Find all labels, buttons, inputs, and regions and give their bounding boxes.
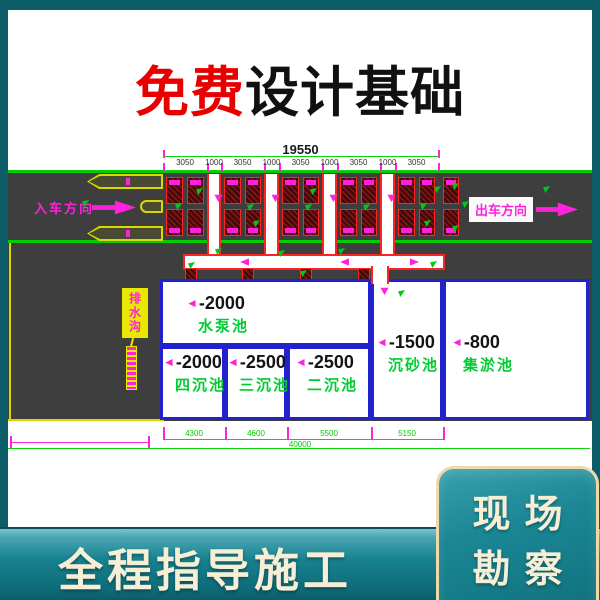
dim-label: 1000 <box>200 158 228 167</box>
pad-curb-strip <box>343 228 354 233</box>
wash-pad <box>187 209 204 236</box>
dim-tick <box>287 427 289 440</box>
traffic-island-fill <box>89 176 161 187</box>
page-title: 免费设计基础 <box>0 48 600 127</box>
leader-label: 排水沟 <box>127 292 144 334</box>
pool-depth-label: ◄-2000 <box>163 352 222 373</box>
exit-direction-label: 出车方向 <box>469 197 533 222</box>
dim-tick <box>163 427 165 440</box>
aux-dim-tick <box>148 436 150 448</box>
side-box-line2: 勘察 <box>439 538 596 593</box>
wash-pad <box>443 177 459 204</box>
side-box-line1: 现场 <box>439 483 596 538</box>
pad-curb-strip <box>190 180 201 185</box>
leader-label-box: 排水沟 <box>122 288 148 338</box>
wash-pad <box>224 209 241 236</box>
pool-name-label: 集淤池 <box>463 354 514 375</box>
wash-pad <box>340 209 357 236</box>
footer-banner-text: 全程指导施工 <box>25 534 385 599</box>
wash-pad <box>282 209 299 236</box>
pool-depth-label: ◄-2000 <box>186 293 245 314</box>
pad-curb-strip <box>401 180 412 185</box>
pad-curb-strip <box>364 180 375 185</box>
pad-curb-strip <box>306 228 317 233</box>
pool-name-label: 四沉池 <box>175 374 226 395</box>
dim-tick <box>443 427 445 440</box>
depth-marker-icon: ◄ <box>295 355 307 369</box>
title-highlight: 免费 <box>135 63 245 123</box>
pad-curb-strip <box>248 228 259 233</box>
dim-label: 3050 <box>345 158 373 167</box>
pool-depth-label: ◄-2500 <box>295 352 354 373</box>
pad-curb-strip <box>401 228 412 233</box>
dim-label: 4600 <box>240 429 272 438</box>
pad-curb-strip <box>285 228 296 233</box>
pool-name-label: 沉砂池 <box>388 354 439 375</box>
wash-pad <box>361 209 378 236</box>
magenta-arrow-icon <box>126 230 130 237</box>
dim-tick <box>371 427 373 440</box>
pad-curb-strip <box>422 228 433 233</box>
pool-depth-label: ◄-1500 <box>376 332 435 353</box>
dim-line <box>8 448 590 449</box>
dim-label: 5500 <box>313 429 345 438</box>
traffic-island-upper <box>87 174 163 189</box>
dim-tick <box>438 150 440 158</box>
wash-pad <box>303 209 320 236</box>
dim-label: 1000 <box>258 158 286 167</box>
title-rest: 设计基础 <box>245 63 465 123</box>
pad-curb-strip <box>306 180 317 185</box>
dim-tick <box>163 163 165 172</box>
pad-curb-strip <box>422 180 433 185</box>
drain-manifold <box>183 254 445 270</box>
total-dimension-top: 19550 <box>163 142 438 157</box>
dim-line <box>163 439 443 440</box>
pad-curb-strip <box>227 228 238 233</box>
wash-pad <box>187 177 204 204</box>
pad-curb-strip <box>364 228 375 233</box>
wash-pad <box>166 177 183 204</box>
magenta-arrow-icon <box>126 178 130 185</box>
wash-pad <box>398 177 415 204</box>
pool-depth-label: ◄-800 <box>451 332 500 353</box>
depth-marker-icon: ◄ <box>163 355 175 369</box>
pool-depth-label: ◄-2500 <box>227 352 286 373</box>
dim-tick <box>438 163 440 172</box>
pad-curb-strip <box>227 180 238 185</box>
pad-curb-strip <box>343 180 354 185</box>
boundary-line-bottom <box>8 419 164 421</box>
dim-label: 1000 <box>316 158 344 167</box>
pad-curb-strip <box>285 180 296 185</box>
pool-name-label: 水泵池 <box>198 315 249 336</box>
wash-pad <box>340 177 357 204</box>
dim-tick <box>225 427 227 440</box>
dim-label: 3050 <box>287 158 315 167</box>
dim-label: 1000 <box>374 158 402 167</box>
dim-label: 3050 <box>229 158 257 167</box>
traffic-island-lower <box>87 226 163 241</box>
lane-channel <box>322 174 337 240</box>
promo-page: 免费设计基础 入车方向 出车方向 排水沟 19550 40000 ⇐8% 全程指… <box>0 0 600 600</box>
depth-marker-icon: ◄ <box>451 335 463 349</box>
dim-label: 3050 <box>171 158 199 167</box>
pool-name-label: 二沉池 <box>307 374 358 395</box>
drain-strip <box>126 346 137 390</box>
pad-curb-strip <box>169 228 180 233</box>
pool-name-label: 三沉池 <box>239 374 290 395</box>
depth-marker-icon: ◄ <box>186 296 198 310</box>
wash-pad <box>443 209 459 236</box>
aux-dim-line <box>10 442 150 443</box>
wash-pad <box>166 209 183 236</box>
dim-tick <box>163 150 165 158</box>
lane-channel <box>207 174 221 240</box>
aux-dim-tick <box>10 436 12 448</box>
depth-marker-icon: ◄ <box>227 355 239 369</box>
wash-pad <box>245 177 262 204</box>
lane-channel <box>380 174 395 240</box>
wash-pad <box>282 177 299 204</box>
wash-pad <box>419 177 436 204</box>
wash-pad <box>245 209 262 236</box>
pad-curb-strip <box>248 180 259 185</box>
footer-side-box: 现场 勘察 <box>436 466 599 600</box>
road-edge-line-bottom <box>8 240 592 243</box>
traffic-island-middle <box>140 200 163 213</box>
traffic-island-fill <box>89 228 161 239</box>
wash-pad <box>224 177 241 204</box>
dim-line <box>163 156 438 157</box>
boundary-line-left <box>9 243 11 421</box>
dim-label: 5150 <box>391 429 423 438</box>
dim-label: 3050 <box>403 158 431 167</box>
dim-label: 4300 <box>178 429 210 438</box>
pad-curb-strip <box>190 228 201 233</box>
drain-drop-pipe <box>371 266 389 284</box>
pad-curb-strip <box>169 180 180 185</box>
depth-marker-icon: ◄ <box>376 335 388 349</box>
wash-pad <box>361 177 378 204</box>
lane-channel <box>264 174 279 240</box>
wash-pad <box>398 209 415 236</box>
